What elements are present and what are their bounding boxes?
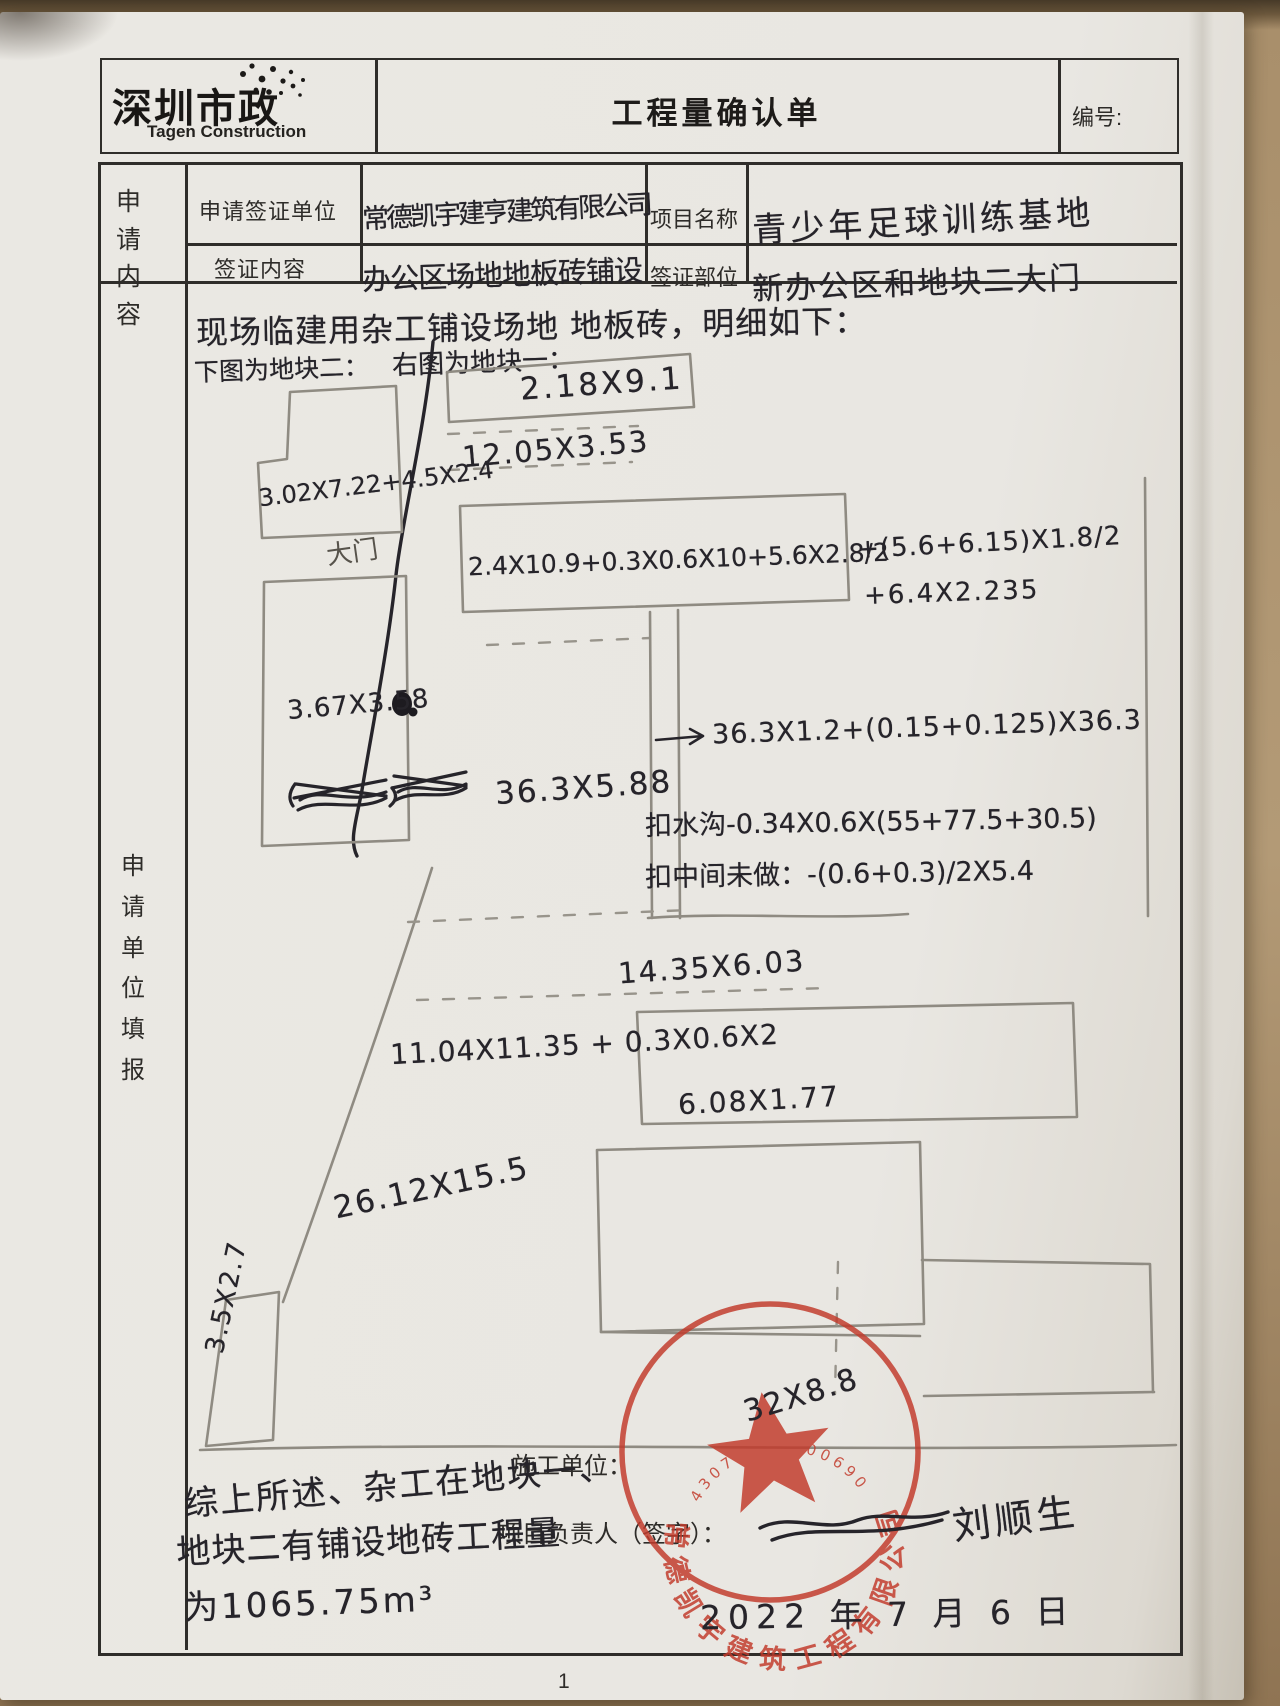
header-divider-2: [1058, 58, 1061, 152]
deduct-ditch: 扣水沟-0.34X0.6X(55+77.5+30.5): [645, 796, 1097, 843]
cell-divider-b: [645, 162, 648, 282]
deduct-middle: 扣中间未做：-(0.6+0.3)/2X5.4: [645, 849, 1035, 895]
apply-unit-label: 申请签证单位: [199, 194, 337, 226]
form-title: 工程量确认单: [375, 88, 1058, 133]
measure-formula-add2: +6.4X2.235: [864, 575, 1040, 611]
paper-sheet: 深圳市政 Tagen Construction 工程量确认单 编号: 申请内容 …: [0, 12, 1244, 1700]
note-left-block: 下图为地块二：: [193, 347, 369, 389]
apply-section-label: 申请内容: [116, 184, 172, 334]
part-label: 签证部位: [650, 260, 738, 292]
content-label: 签证内容: [214, 252, 306, 284]
company-logo-subtext: Tagen Construction: [147, 122, 306, 142]
doc-number-label: 编号:: [1072, 100, 1122, 132]
page-number: 1: [558, 1670, 570, 1694]
summary-total: 为1065.75m³: [183, 1572, 436, 1630]
scanned-document-photo: { "header": { "logo_cn": "深圳市政", "logo_e…: [0, 0, 1280, 1706]
cell-divider-c: [746, 162, 749, 282]
left-column-divider: [185, 162, 188, 1650]
gate-label: 大门: [324, 529, 381, 573]
filler-section-label: 申请单位填报: [121, 847, 173, 1092]
project-name-label: 项目名称: [650, 202, 738, 234]
row-divider-1: [185, 243, 1177, 246]
signoff-date: 2022 年 7 月 6 日: [700, 1585, 1076, 1640]
paper-crease: [1188, 12, 1214, 1700]
